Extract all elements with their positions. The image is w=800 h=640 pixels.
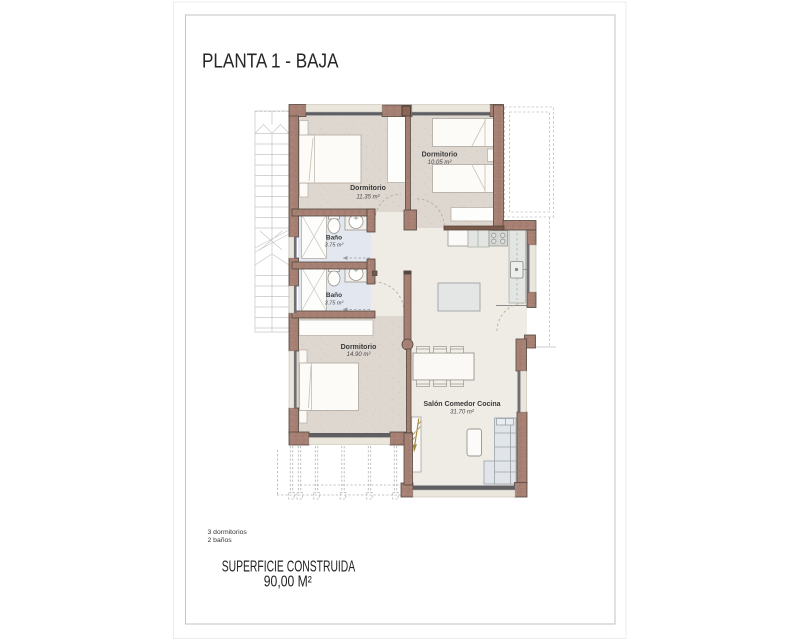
svg-text:Baño: Baño (326, 235, 342, 242)
svg-text:3 dormitorios: 3 dormitorios (208, 529, 248, 536)
svg-text:3.75 m²: 3.75 m² (325, 243, 344, 249)
svg-text:90,00 M²: 90,00 M² (264, 574, 312, 591)
svg-text:Dormitorio: Dormitorio (422, 152, 458, 159)
svg-text:2 baños: 2 baños (208, 537, 233, 544)
svg-text:Dormitorio: Dormitorio (350, 185, 386, 192)
svg-text:Dormitorio: Dormitorio (341, 344, 377, 351)
svg-text:31.70 m²: 31.70 m² (450, 410, 475, 416)
svg-text:PLANTA 1 - BAJA: PLANTA 1 - BAJA (202, 51, 339, 73)
svg-text:Baño: Baño (326, 292, 342, 299)
svg-text:14.90 m²: 14.90 m² (347, 352, 372, 358)
svg-text:3.75 m²: 3.75 m² (325, 301, 344, 307)
svg-text:10.05 m²: 10.05 m² (428, 160, 453, 166)
svg-text:Salón Comedor Cocina: Salón Comedor Cocina (423, 401, 500, 408)
svg-text:11.35 m²: 11.35 m² (356, 195, 380, 201)
